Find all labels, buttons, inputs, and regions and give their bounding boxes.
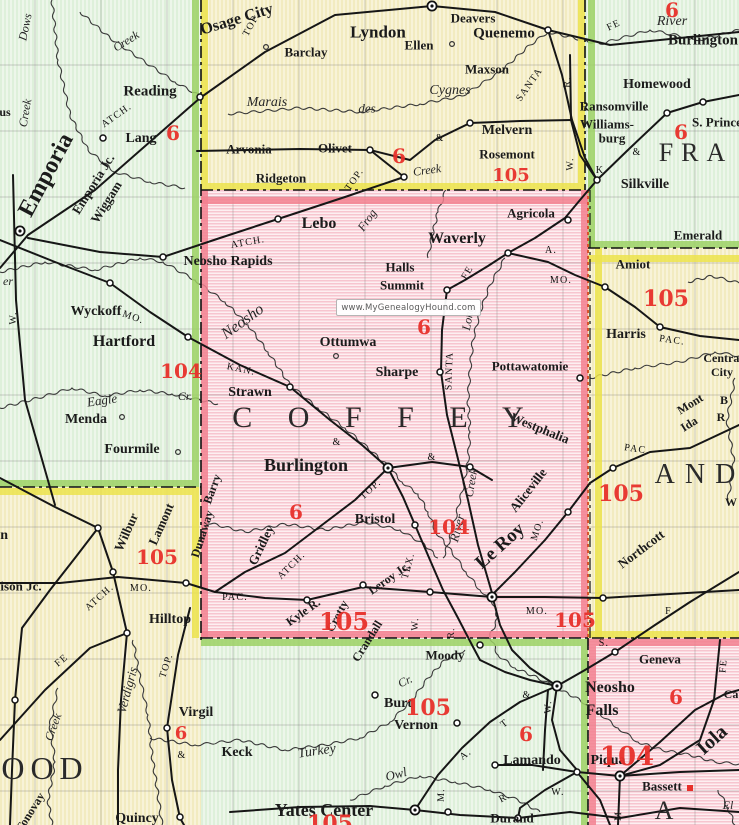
- railroad-label-w-28: W.: [566, 157, 576, 171]
- railroad-label-r-30: R.: [447, 627, 457, 639]
- route-number-6-18: 6: [175, 725, 188, 743]
- railroad-label-top-4: TOP.: [158, 653, 175, 680]
- water-label-cr-11: Cr.: [178, 390, 192, 402]
- town-label-geneva-80: Geneva: [639, 653, 681, 666]
- railroad-label-fe-17: FE: [460, 264, 476, 281]
- town-label-us-10: us: [0, 106, 11, 118]
- railroad-label-a-24: A.: [545, 246, 557, 256]
- town-label-quenemo-16: Quenemo: [473, 27, 535, 42]
- county-label-fra-1: FRA: [659, 140, 734, 166]
- town-label-hartford-6: Hartford: [93, 334, 155, 350]
- water-label-cr-12: Cr.: [396, 673, 414, 690]
- railroad-label-fe-19: FE: [718, 659, 729, 674]
- town-label-city-36: City: [711, 366, 733, 378]
- route-number-105-19: 105: [307, 813, 353, 825]
- town-label-burg-29: burg: [599, 132, 626, 145]
- route-number-105-8: 105: [598, 483, 644, 505]
- railroad-label-w-27: W.: [9, 311, 19, 325]
- railroad-label-m-35: M: [614, 811, 624, 821]
- town-label-osage-city-13: Osage City: [199, 1, 276, 38]
- water-label-creek-16: Creek: [412, 162, 442, 178]
- town-label-barry-56: Barry: [201, 473, 223, 506]
- town-label-moody-64: Moody: [426, 649, 465, 662]
- town-label-durand-79: Durand: [490, 812, 533, 825]
- railroad-label-top-3: TOP.: [358, 478, 383, 502]
- railroad-label-tex-23: TEX.: [401, 552, 418, 580]
- town-label-agricola-46: Agricola: [507, 207, 555, 220]
- town-label-summit-48: Summit: [380, 279, 424, 292]
- water-label-creek-20: Creek: [43, 712, 64, 743]
- town-label-w-43: W: [725, 496, 737, 508]
- town-label-keck-71: Keck: [221, 746, 252, 760]
- town-label-ellen-17: Ellen: [405, 39, 434, 52]
- railroad-label-t-26: T: [499, 718, 511, 730]
- route-number-105-14: 105: [405, 697, 451, 719]
- railroad-label-w-32: W.: [544, 700, 554, 714]
- town-label-kyle-r-60: Kyle R.: [284, 596, 323, 628]
- watermark: www.MyGenealogyHound.com: [336, 299, 481, 316]
- town-label-halls-47: Halls: [386, 261, 415, 274]
- town-label-iola-81: Iola: [693, 721, 731, 758]
- route-number-6-17: 6: [669, 687, 683, 707]
- town-label-lang-1: Lang: [125, 132, 156, 146]
- railroad-label-atch-0: ATCH.: [100, 102, 134, 130]
- town-label-harris-34: Harris: [606, 328, 646, 342]
- town-label-bassett-82: Bassett: [642, 780, 682, 793]
- railroad-label-label-42: &: [333, 438, 342, 448]
- town-label-pottawatomie-51: Pottawatomie: [492, 360, 569, 373]
- town-label-ridgeton-24: Ridgeton: [256, 172, 307, 185]
- town-label-arvonia-22: Arvonia: [226, 143, 272, 156]
- town-label-mont-37: Mont: [675, 391, 705, 416]
- town-label-quincy-69: Quincy: [115, 812, 159, 825]
- water-label-dows-13: Dows: [16, 12, 33, 41]
- railroad-label-fe-16: FE: [606, 18, 623, 33]
- town-label-falls-76: Falls: [586, 703, 619, 719]
- town-label-virgil-68: Virgil: [179, 706, 213, 720]
- town-label-ottumwa-49: Ottumwa: [320, 336, 377, 350]
- water-label-cygnes-2: Cygnes: [429, 84, 470, 98]
- route-number-105-12: 105: [319, 610, 369, 634]
- town-label-fourmile-8: Fourmile: [104, 443, 159, 457]
- town-label-s-princeton-30: S. Princeton: [692, 116, 739, 129]
- railroad-label-atch-5: ATCH.: [230, 235, 266, 251]
- map-image: ReadingLangEmporiaEmporia Jc.WiggamWycko…: [0, 0, 739, 825]
- town-label-ransomville-27: Ransomville: [580, 100, 649, 113]
- town-label-neosho-75: Neosho: [585, 680, 635, 696]
- town-label-sharpe-50: Sharpe: [376, 366, 419, 380]
- town-label-menda-7: Menda: [65, 413, 107, 427]
- town-label-barclay-19: Barclay: [284, 46, 327, 59]
- route-number-6-1: 6: [392, 146, 406, 166]
- town-label-silkville-31: Silkville: [621, 178, 669, 192]
- town-label-vernon-73: Vernon: [394, 719, 438, 733]
- county-label-a-4: A: [655, 798, 674, 824]
- town-label-burlington-53: Burlington: [264, 456, 348, 474]
- town-label-homewood-26: Homewood: [623, 78, 691, 92]
- town-label-neosho-rapids-9: Neosho Rapids: [183, 255, 272, 269]
- railroad-label-label-41: &: [633, 148, 642, 158]
- watermark-text: www.MyGenealogyHound.com: [341, 303, 475, 313]
- route-number-104-6: 104: [160, 361, 202, 381]
- town-label-central-35: Central: [703, 352, 739, 364]
- town-label-r-40: R: [717, 411, 726, 423]
- town-label-gridley-55: Gridley: [246, 523, 276, 567]
- town-label-strawn-52: Strawn: [228, 386, 272, 400]
- railroad-label-r-29: R.: [563, 76, 573, 88]
- railroad-label-pac-20: PAC.: [659, 334, 686, 347]
- water-label-verdigris-17: Verdigris: [115, 666, 140, 715]
- railroad-label-w-33: W.: [551, 788, 564, 798]
- town-label-hilltop-67: Hilltop: [149, 613, 191, 627]
- town-label-aliceville-59: Aliceville: [507, 466, 549, 514]
- railroad-label-label-43: &: [428, 453, 437, 463]
- water-label-er-5: er: [3, 275, 13, 287]
- town-label-williams-28: Williams-: [580, 118, 634, 131]
- railroad-label-atch-6: ATCH.: [276, 550, 308, 582]
- water-label-frog-7: Frog: [355, 207, 378, 233]
- railroad-label-k-39: K: [596, 166, 604, 176]
- railroad-label-s-38: S.: [599, 639, 609, 649]
- water-label-marais-0: Marais: [247, 96, 287, 110]
- route-number-6-10: 6: [289, 502, 303, 522]
- route-number-105-13: 105: [554, 610, 596, 630]
- water-label-eagle-10: Eagle: [86, 391, 118, 408]
- water-label-owl-19: Owl: [384, 765, 408, 783]
- town-label-madison-jc-12: Madison Jc.: [0, 580, 42, 593]
- railroad-label-mo-12: MO.: [130, 584, 152, 594]
- town-label-deavers-15: Deavers: [451, 12, 496, 25]
- railroad-label-mo-9: MO.: [550, 276, 572, 286]
- town-label-wyckoff-5: Wyckoff: [71, 305, 122, 319]
- railroad-label-m-34: M.: [437, 788, 447, 802]
- railroad-label-label-40: &: [436, 134, 445, 144]
- town-label-olivet-23: Olivet: [318, 142, 352, 155]
- town-label-ca-83: Ca: [724, 688, 739, 700]
- town-label-tonovay-70: Tonovay: [13, 790, 46, 825]
- map-labels: ReadingLangEmporiaEmporia Jc.WiggamWycko…: [0, 0, 739, 825]
- railroad-label-f-37: F.: [665, 607, 675, 617]
- railroad-label-w-31: W.: [411, 617, 421, 631]
- town-label-burlington-25: Burlington: [668, 34, 738, 49]
- town-label-dunaway-57: Dunaway: [189, 509, 215, 559]
- town-label-lamont-66: Lamont: [146, 501, 176, 547]
- route-number-6-16: 6: [519, 724, 533, 744]
- water-label-creek-15: Creek: [111, 28, 141, 53]
- water-label-turkey-18: Turkey: [297, 742, 337, 761]
- railroad-label-mo-10: MO.: [530, 518, 546, 542]
- water-label-creek-14: Creek: [17, 98, 34, 128]
- county-label-ood-3: OOD: [1, 752, 88, 784]
- town-label-bristol-54: Bristol: [355, 513, 395, 527]
- water-label-el-21: El: [723, 799, 734, 811]
- railroad-label-santa-14: SANTA: [515, 66, 545, 103]
- route-number-6-5: 6: [417, 317, 431, 337]
- railroad-label-kan-13: KAN.: [226, 362, 256, 378]
- route-number-104-15: 104: [600, 744, 654, 770]
- route-number-6-0: 6: [166, 123, 180, 143]
- town-label-waverly-45: Waverly: [428, 231, 486, 247]
- county-label-c-o-f-f-e-y-0: C O F F E Y: [232, 403, 537, 433]
- railroad-label-mo-11: MO.: [526, 607, 548, 617]
- town-label-reading-0: Reading: [123, 85, 176, 100]
- water-label-neosho-6: Neosho: [219, 301, 267, 342]
- railroad-label-label-44: &: [523, 691, 532, 701]
- town-label-lebo-44: Lebo: [302, 216, 337, 232]
- route-number-105-11: 105: [136, 547, 178, 567]
- town-label-lyndon-14: Lyndon: [350, 24, 406, 41]
- town-label-emerald-32: Emerald: [674, 229, 722, 242]
- route-number-6-3: 6: [665, 0, 679, 20]
- town-label-rosemont-21: Rosemont: [479, 148, 535, 161]
- railroad-label-fe-18: FE: [53, 653, 70, 670]
- town-label-maxson-18: Maxson: [465, 63, 509, 76]
- railroad-label-pac-21: PAC.: [624, 443, 651, 456]
- railroad-label-r-36: R.: [498, 791, 513, 805]
- water-label-des-1: des: [358, 102, 375, 115]
- route-number-104-9: 104: [428, 517, 470, 537]
- town-label-northcott-42: Northcott: [615, 528, 666, 571]
- route-number-105-7: 105: [643, 288, 689, 310]
- town-label-melvern-20: Melvern: [482, 124, 533, 138]
- railroad-label-top-2: TOP.: [344, 167, 366, 193]
- town-label-le-roy-58: Le Roy: [472, 519, 528, 572]
- county-label-and-2: AND: [655, 461, 739, 489]
- railroad-label-a-25: A.: [458, 747, 474, 762]
- town-label-madison-11: Madison: [0, 529, 8, 543]
- town-label-amiot-33: Amiot: [616, 258, 651, 271]
- railroad-label-pac-22: PAC.: [222, 593, 248, 603]
- route-number-105-2: 105: [492, 167, 530, 185]
- railroad-label-mo-8: MO.: [121, 310, 145, 327]
- railroad-label-label-45: &: [178, 751, 187, 761]
- railroad-label-atch-7: ATCH.: [84, 583, 116, 614]
- water-label-creek-9: Creek: [463, 468, 480, 498]
- railroad-label-santa-15: SANTA: [444, 352, 455, 391]
- town-label-b-39: B: [720, 394, 728, 406]
- town-label-lamando-77: Lamando: [503, 754, 561, 768]
